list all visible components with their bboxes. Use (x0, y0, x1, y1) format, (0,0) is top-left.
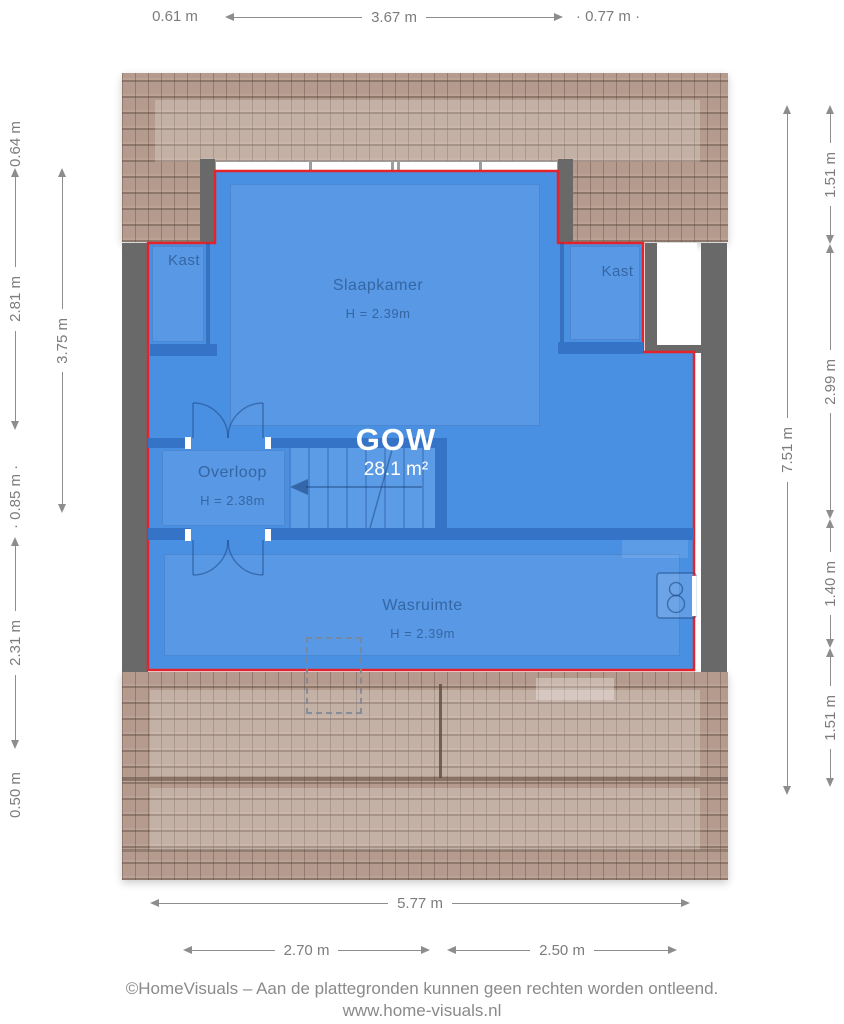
washing-machine-icon (657, 573, 697, 618)
dim-left-3: 0.85 m (7, 437, 24, 529)
room-name: Overloop (170, 464, 295, 482)
arrow-down-icon (11, 421, 19, 430)
dim-line (594, 950, 668, 951)
dim-line (426, 17, 554, 18)
dim-left-5: 0.50 m (7, 752, 24, 818)
footer: ©HomeVisuals – Aan de plattegronden kunn… (0, 978, 844, 1022)
dim-value: 3.67 m (362, 9, 426, 26)
dim-line (830, 749, 831, 778)
dim-line (192, 950, 275, 951)
dim-line (830, 206, 831, 235)
dim-value: 5.77 m (388, 895, 452, 912)
dim-line (15, 331, 16, 421)
dim-line (15, 546, 16, 611)
arrow-down-icon (58, 504, 66, 513)
dim-right-2: 2.99 m (822, 244, 838, 519)
room-height: H = 2.39m (330, 626, 515, 641)
dim-top-1: 0.61 m (140, 8, 210, 25)
arrow-down-icon (826, 235, 834, 244)
dim-line (787, 482, 788, 786)
kast-right-label: Kast (580, 263, 655, 280)
floorplan-detail-svg (0, 0, 844, 1024)
dim-left-4: 2.31 m (7, 537, 23, 749)
arrow-up-icon (11, 168, 19, 177)
dim-line (830, 114, 831, 143)
room-name: Wasruimte (330, 597, 515, 615)
arrow-up-icon (11, 537, 19, 546)
dim-value: 7.51 m (779, 418, 796, 482)
gow-area-label: GOW 28.1 m² (320, 424, 472, 481)
dim-value: 2.50 m (530, 942, 594, 959)
arrow-right-icon (421, 946, 430, 954)
arrow-right-icon (554, 13, 563, 21)
dim-right-3: 1.40 m (822, 519, 838, 648)
dim-top-3: 0.77 m (565, 8, 651, 25)
dim-line (234, 17, 362, 18)
arrow-up-icon (826, 244, 834, 253)
room-name: Slaapkamer (278, 277, 478, 295)
arrow-down-icon (826, 639, 834, 648)
arrow-up-icon (783, 105, 791, 114)
dim-line (830, 253, 831, 350)
gow-area-value: 28.1 m² (320, 459, 472, 481)
dim-value: 2.70 m (275, 942, 339, 959)
arrow-left-icon (150, 899, 159, 907)
dim-value: 2.81 m (7, 267, 24, 331)
dim-value: 1.51 m (822, 143, 839, 207)
dim-line (452, 903, 681, 904)
arrow-right-icon (668, 946, 677, 954)
dim-bottom-left: 2.70 m (183, 941, 430, 959)
arrow-left-icon (225, 13, 234, 21)
dim-value: 2.31 m (7, 611, 24, 675)
footer-disclaimer: ©HomeVisuals – Aan de plattegronden kunn… (0, 978, 844, 1000)
dim-left-2: 2.81 m (7, 168, 23, 430)
arrow-down-icon (783, 786, 791, 795)
dim-line (456, 950, 530, 951)
double-door-bottom (193, 540, 263, 575)
arrow-up-icon (826, 105, 834, 114)
dim-line (830, 615, 831, 639)
dim-bottom-total: 5.77 m (150, 894, 690, 912)
dim-right-1: 1.51 m (822, 105, 838, 244)
slaapkamer-label: Slaapkamer H = 2.39m (278, 277, 478, 321)
overloop-label: Overloop H = 2.38m (170, 464, 295, 508)
dim-value: 3.75 m (54, 309, 71, 373)
arrow-down-icon (826, 778, 834, 787)
dim-value: 1.51 m (822, 686, 839, 750)
dim-line (62, 177, 63, 309)
dim-line (159, 903, 388, 904)
dim-left-inner: 3.75 m (54, 168, 70, 513)
room-height: H = 2.38m (170, 493, 295, 508)
dim-bottom-right: 2.50 m (447, 941, 677, 959)
arrow-left-icon (183, 946, 192, 954)
arrow-down-icon (11, 740, 19, 749)
dim-line (787, 114, 788, 418)
gow-title: GOW (320, 424, 472, 455)
footer-website: www.home-visuals.nl (0, 1000, 844, 1022)
arrow-up-icon (58, 168, 66, 177)
double-door-top (193, 403, 263, 438)
room-height: H = 2.39m (278, 306, 478, 321)
arrow-up-icon (826, 648, 834, 657)
dim-line (830, 413, 831, 510)
arrow-right-icon (681, 899, 690, 907)
dim-line (15, 675, 16, 740)
arrow-up-icon (826, 519, 834, 528)
kast-left-label: Kast (150, 252, 218, 269)
dim-value: 1.40 m (822, 552, 839, 616)
dim-left-1: 0.64 m (7, 105, 24, 167)
dim-top-2: 3.67 m (225, 8, 563, 26)
wasruimte-label: Wasruimte H = 2.39m (330, 597, 515, 641)
dim-line (830, 657, 831, 686)
dim-right-inner: 7.51 m (779, 105, 795, 795)
dim-value: 2.99 m (822, 350, 839, 414)
arrow-down-icon (826, 510, 834, 519)
dim-right-4: 1.51 m (822, 648, 838, 787)
dim-line (338, 950, 421, 951)
dim-line (830, 528, 831, 552)
dim-line (15, 177, 16, 267)
dim-line (62, 372, 63, 504)
arrow-left-icon (447, 946, 456, 954)
